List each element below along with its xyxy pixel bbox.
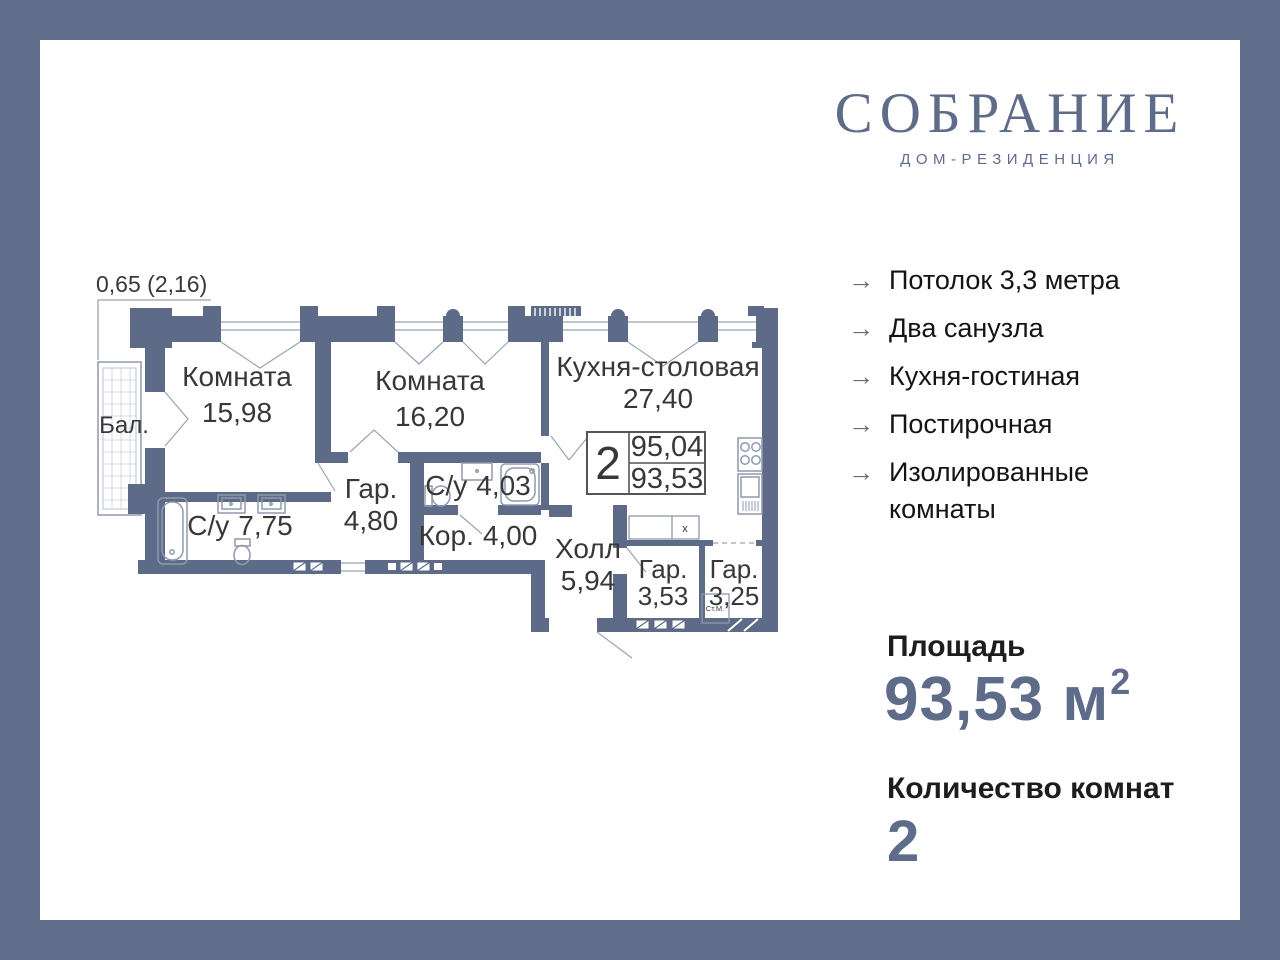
closet-mark: х <box>682 523 688 535</box>
room-area-wardrobe3: 3,25 <box>709 581 760 611</box>
room-label-balcony: Бал. <box>99 412 149 439</box>
stove-icon <box>738 438 762 471</box>
feature-item: →Два санузла <box>848 310 1158 347</box>
brand-name: СОБРАНИЕ <box>820 84 1200 144</box>
rooms-count-value: 2 <box>887 808 919 875</box>
feature-label: Потолок 3,3 метра <box>889 262 1120 299</box>
room-area-bedroom2: 16,20 <box>395 401 465 432</box>
arrow-right-icon: → <box>848 454 874 491</box>
rooms-count-label: Количество комнат <box>887 772 1174 806</box>
room-label-corridor: Кор.4,00 <box>419 520 538 551</box>
feature-item: →Изолированные комнаты <box>848 454 1158 528</box>
area-unit-sup: 2 <box>1110 661 1131 702</box>
room-area-bedroom1: 15,98 <box>202 397 272 428</box>
brand-subtitle: ДОМ-РЕЗИДЕНЦИЯ <box>820 151 1200 168</box>
brand-logo: СОБРАНИЕ ДОМ-РЕЗИДЕНЦИЯ <box>820 84 1200 168</box>
arrow-right-icon: → <box>848 262 874 299</box>
room-label-bedroom1: Комната <box>182 361 292 392</box>
feature-item: →Потолок 3,3 метра <box>848 262 1158 299</box>
feature-item: →Постирочная <box>848 406 1158 443</box>
closet-counter: х <box>629 516 699 539</box>
feature-label: Кухня-гостиная <box>889 358 1080 395</box>
plan-info-box: 2 95,04 93,53 <box>587 431 705 495</box>
info-box-rooms: 2 <box>595 437 621 489</box>
room-label-bedroom2: Комната <box>375 365 485 396</box>
arrow-right-icon: → <box>848 310 874 347</box>
room-label-kitchen: Кухня-столовая <box>556 351 759 382</box>
room-label-bath2: С/у4,03 <box>425 470 531 501</box>
room-area-hall: 5,94 <box>561 565 616 596</box>
feature-label: Постирочная <box>889 406 1052 443</box>
room-area-wardrobe2: 3,53 <box>638 581 689 611</box>
arrow-right-icon: → <box>848 358 874 395</box>
feature-list: →Потолок 3,3 метра →Два санузла →Кухня-г… <box>848 262 1158 539</box>
balcony-dimension-label: 0,65 (2,16) <box>96 271 207 297</box>
room-label-wardrobe2: Гар. <box>639 554 688 584</box>
info-box-total-area: 95,04 <box>631 431 704 463</box>
feature-item: →Кухня-гостиная <box>848 358 1158 395</box>
bathtub-icon <box>158 498 187 564</box>
room-label-wardrobe3: Гар. <box>710 554 759 584</box>
feature-label: Изолированные комнаты <box>889 454 1158 528</box>
room-label-wardrobe1: Гар. <box>345 473 398 504</box>
room-area-kitchen: 27,40 <box>623 383 693 414</box>
room-area-wardrobe1: 4,80 <box>344 505 399 536</box>
kitchen-unit-icon <box>738 474 762 514</box>
feature-label: Два санузла <box>889 310 1044 347</box>
room-label-hall: Холл <box>555 533 621 564</box>
area-value: 93,53 м2 <box>884 664 1130 735</box>
area-label: Площадь <box>887 630 1025 664</box>
arrow-right-icon: → <box>848 406 874 443</box>
info-box-living-area: 93,53 <box>631 463 704 495</box>
room-label-bath1: С/у7,75 <box>187 510 293 541</box>
floor-plan: 0,65 (2,16) <box>88 258 790 660</box>
